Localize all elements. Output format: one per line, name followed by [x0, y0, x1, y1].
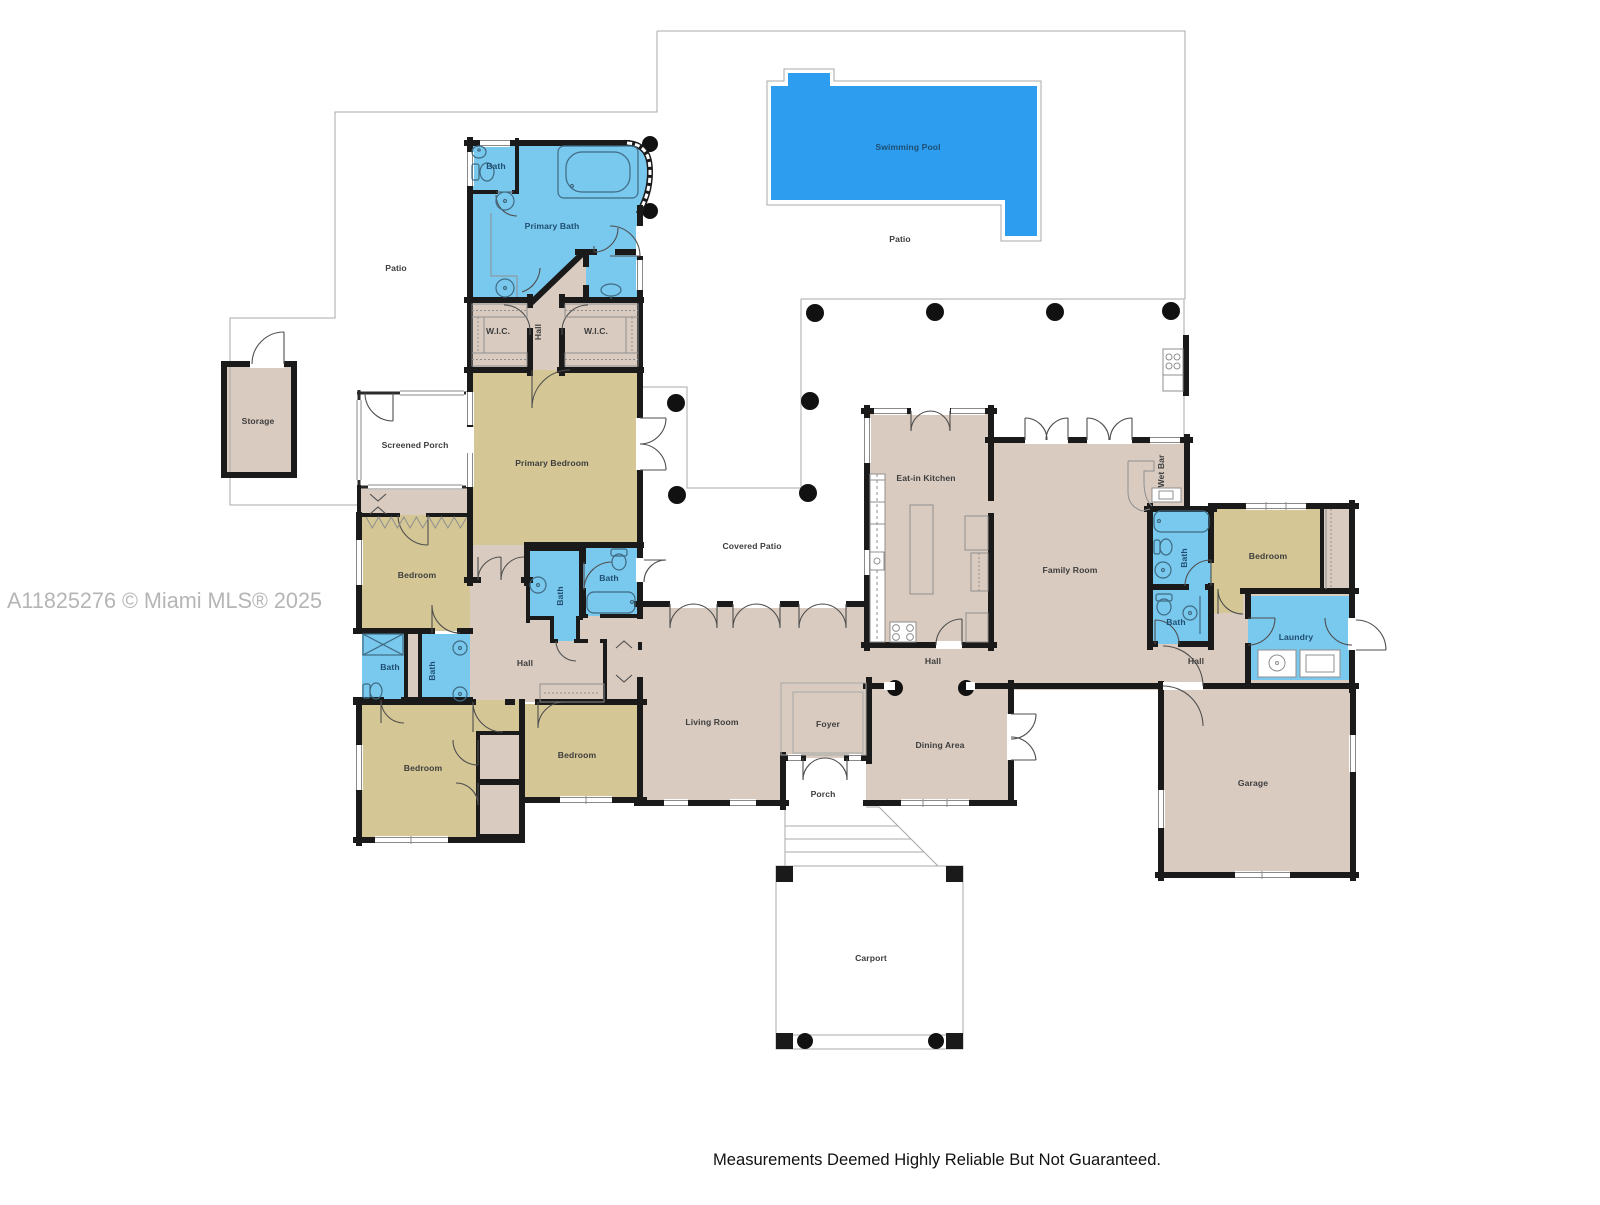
svg-text:Bedroom: Bedroom [398, 570, 437, 580]
svg-text:Bath: Bath [380, 662, 400, 672]
svg-text:Screened Porch: Screened Porch [382, 440, 449, 450]
svg-text:Swimming Pool: Swimming Pool [875, 142, 940, 152]
svg-text:Measurements Deemed Highly Rel: Measurements Deemed Highly Reliable But … [713, 1150, 1161, 1169]
svg-text:W.I.C.: W.I.C. [584, 326, 608, 336]
svg-text:Porch: Porch [811, 789, 836, 799]
svg-text:Wet Bar: Wet Bar [1156, 454, 1166, 488]
svg-text:Bath: Bath [1179, 548, 1189, 568]
svg-text:A11825276 © Miami MLS® 2025: A11825276 © Miami MLS® 2025 [7, 588, 322, 613]
svg-text:Laundry: Laundry [1279, 632, 1314, 642]
svg-text:Bath: Bath [1166, 617, 1186, 627]
svg-text:Bedroom: Bedroom [1249, 551, 1288, 561]
svg-text:Hall: Hall [1188, 656, 1204, 666]
svg-text:Patio: Patio [385, 263, 407, 273]
svg-text:Bath: Bath [486, 161, 506, 171]
svg-text:Garage: Garage [1238, 778, 1268, 788]
svg-text:W.I.C.: W.I.C. [486, 326, 510, 336]
svg-text:Hall: Hall [925, 656, 941, 666]
svg-text:Storage: Storage [242, 416, 275, 426]
svg-text:Hall: Hall [533, 324, 543, 340]
svg-text:Covered Patio: Covered Patio [722, 541, 781, 551]
svg-text:Eat-in Kitchen: Eat-in Kitchen [896, 473, 955, 483]
svg-text:Bath: Bath [599, 573, 619, 583]
svg-text:Primary Bedroom: Primary Bedroom [515, 458, 589, 468]
svg-text:Foyer: Foyer [816, 719, 840, 729]
svg-text:Bath: Bath [427, 661, 437, 681]
svg-text:Living Room: Living Room [685, 717, 738, 727]
svg-text:Bath: Bath [555, 586, 565, 606]
svg-text:Patio: Patio [889, 234, 911, 244]
svg-text:Dining Area: Dining Area [915, 740, 964, 750]
svg-text:Bedroom: Bedroom [404, 763, 443, 773]
svg-text:Carport: Carport [855, 953, 887, 963]
svg-text:Primary Bath: Primary Bath [525, 221, 580, 231]
svg-text:Bedroom: Bedroom [558, 750, 597, 760]
svg-text:Family Room: Family Room [1042, 565, 1097, 575]
svg-text:Hall: Hall [517, 658, 533, 668]
